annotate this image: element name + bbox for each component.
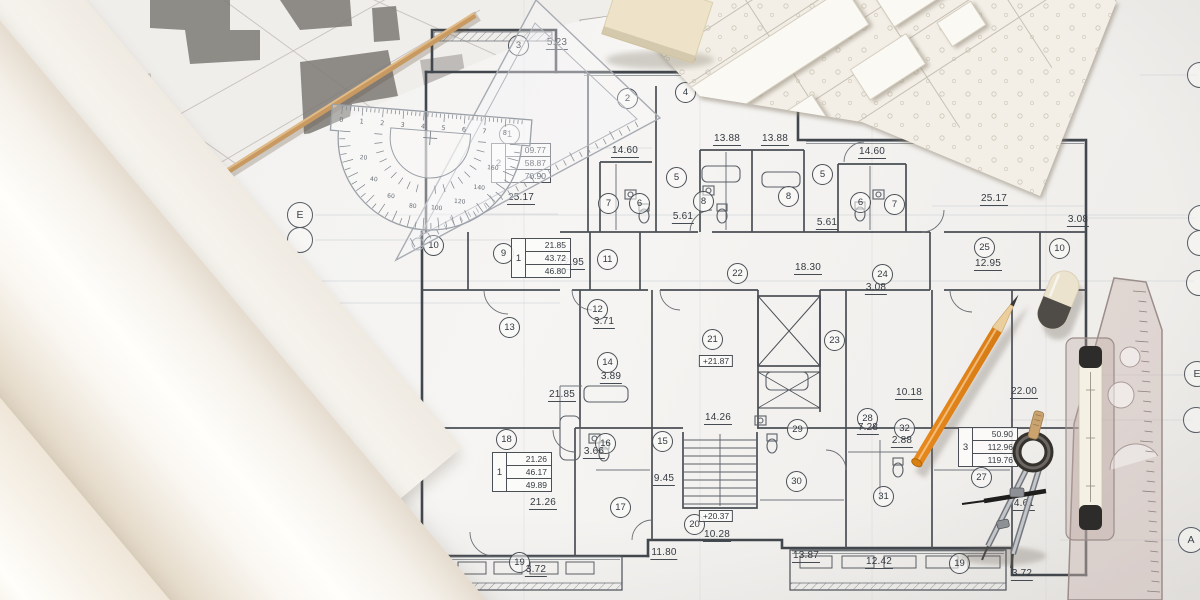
eraser [1030,266,1092,344]
pencil [910,295,1029,478]
protractor: 012345678 20406080100120140160 [323,104,532,237]
svg-text:140: 140 [473,184,485,192]
svg-text:5: 5 [441,124,446,132]
svg-text:120: 120 [454,198,466,206]
svg-text:80: 80 [409,203,417,211]
svg-text:20: 20 [359,154,367,162]
svg-text:100: 100 [431,204,443,212]
svg-text:8: 8 [502,129,507,137]
svg-text:4: 4 [421,122,426,130]
svg-text:0: 0 [339,116,344,124]
drafting-tools: 012345678 20406080100120140160 [0,0,1200,600]
svg-text:7: 7 [482,127,487,135]
svg-text:40: 40 [370,176,378,184]
svg-text:60: 60 [387,193,395,201]
blueprint-scene: 1234556677889101011121314151617181919202… [0,0,1200,600]
svg-text:1: 1 [359,117,364,125]
compass [958,410,1049,568]
svg-text:160: 160 [487,164,499,172]
svg-text:2: 2 [380,119,385,127]
svg-text:3: 3 [400,121,405,129]
rolling-ruler [1066,278,1162,600]
svg-text:6: 6 [462,125,467,133]
